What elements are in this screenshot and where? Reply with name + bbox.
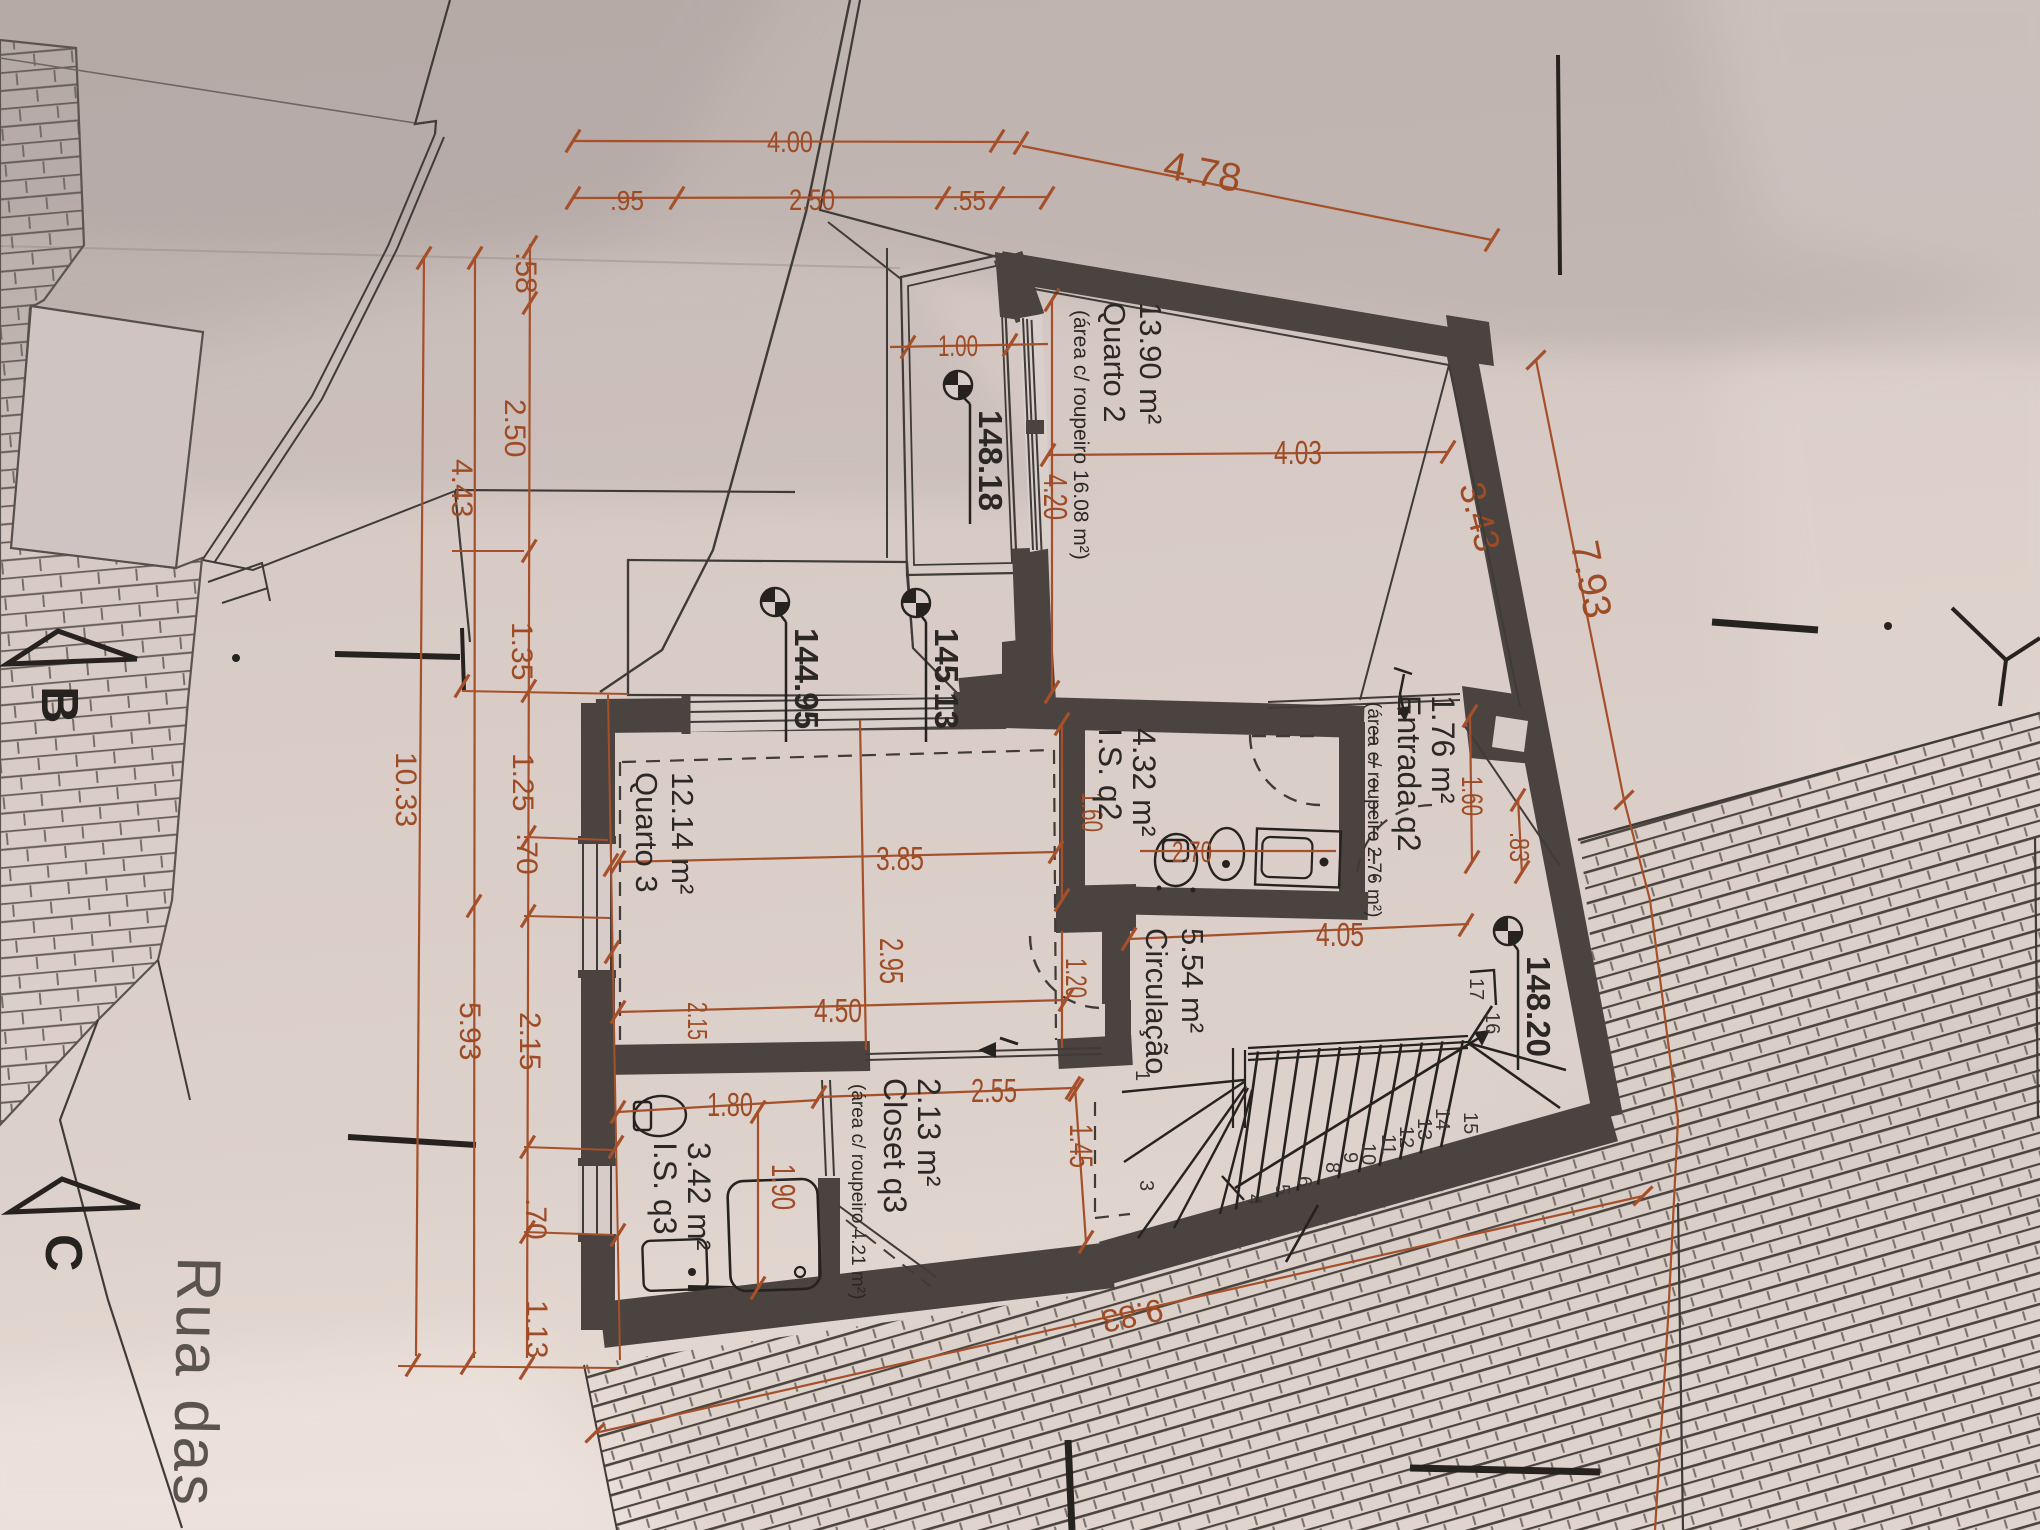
- svg-text:I.S. q3: I.S. q3: [647, 1142, 683, 1235]
- svg-text:148.20: 148.20: [1520, 956, 1557, 1057]
- svg-text:13.90 m²: 13.90 m²: [1133, 302, 1168, 424]
- svg-text:3.85: 3.85: [876, 840, 924, 877]
- svg-text:1.25: 1.25: [506, 753, 539, 811]
- svg-text:B: B: [30, 686, 88, 724]
- svg-text:1.00: 1.00: [938, 330, 978, 363]
- svg-text:8: 8: [1321, 1162, 1343, 1173]
- svg-text:6: 6: [1293, 1176, 1315, 1187]
- svg-text:.83: .83: [1504, 832, 1535, 862]
- svg-text:Closet q3: Closet q3: [877, 1078, 913, 1213]
- svg-text:2.50: 2.50: [789, 184, 835, 217]
- svg-text:1.20: 1.20: [1059, 958, 1092, 998]
- svg-text:16: 16: [1481, 1012, 1503, 1034]
- svg-text:(área c/ roupeiro 4.21 m²): (área c/ roupeiro 4.21 m²): [847, 1084, 868, 1299]
- svg-text:4.20: 4.20: [1037, 474, 1074, 520]
- svg-text:C: C: [34, 1234, 92, 1272]
- svg-text:4.00: 4.00: [767, 126, 813, 159]
- svg-text:Entrada q2: Entrada q2: [1391, 695, 1427, 852]
- svg-text:2.15: 2.15: [682, 1002, 713, 1040]
- svg-text:1.13: 1.13: [520, 1300, 553, 1358]
- svg-text:4.50: 4.50: [814, 992, 862, 1029]
- svg-text:17: 17: [1465, 978, 1487, 1000]
- svg-text:1.45: 1.45: [1063, 1124, 1099, 1168]
- svg-text:Rua das Fl: Rua das Fl: [158, 1256, 233, 1530]
- svg-text:2.95: 2.95: [873, 938, 910, 984]
- svg-text:5: 5: [1271, 1184, 1293, 1195]
- svg-text:I.S. q2: I.S. q2: [1092, 728, 1128, 821]
- svg-text:14: 14: [1431, 1108, 1453, 1130]
- svg-text:4.43: 4.43: [445, 459, 478, 517]
- svg-text:1.35: 1.35: [505, 622, 538, 680]
- svg-text:4.03: 4.03: [1274, 434, 1322, 471]
- svg-text:2.13 m²: 2.13 m²: [911, 1078, 947, 1187]
- svg-text:2.55: 2.55: [971, 1072, 1017, 1109]
- svg-text:.58: .58: [509, 252, 542, 294]
- svg-text:4.05: 4.05: [1316, 916, 1364, 953]
- svg-text:Quarto 2: Quarto 2: [1097, 302, 1132, 423]
- svg-text:3.42 m²: 3.42 m²: [681, 1142, 717, 1251]
- svg-text:Quarto 3: Quarto 3: [629, 772, 664, 893]
- svg-text:Circulação: Circulação: [1139, 928, 1174, 1074]
- svg-text:1.76 m²: 1.76 m²: [1425, 695, 1461, 804]
- svg-text:5.54 m²: 5.54 m²: [1175, 928, 1210, 1033]
- svg-text:145.13: 145.13: [928, 628, 965, 729]
- svg-text:5.93: 5.93: [453, 1002, 486, 1060]
- svg-text:1.80: 1.80: [707, 1086, 753, 1123]
- svg-text:148.18: 148.18: [972, 410, 1009, 511]
- svg-text:2.15: 2.15: [513, 1012, 546, 1070]
- svg-text:10.33: 10.33: [389, 752, 422, 827]
- svg-text:.55: .55: [952, 185, 986, 216]
- svg-text:(área c/ roupeiro 16.08 m²): (área c/ roupeiro 16.08 m²): [1069, 310, 1092, 560]
- svg-text:3: 3: [1135, 1180, 1157, 1191]
- svg-text:4: 4: [1243, 1194, 1265, 1205]
- svg-text:12.14 m²: 12.14 m²: [665, 772, 700, 894]
- svg-text:.95: .95: [610, 185, 644, 216]
- svg-text:(área c/ roupeiro 2.76 m²): (área c/ roupeiro 2.76 m²): [1363, 702, 1384, 917]
- svg-text:4.32 m²: 4.32 m²: [1126, 728, 1162, 837]
- svg-text:15: 15: [1459, 1112, 1481, 1134]
- svg-text:2.50: 2.50: [498, 399, 531, 457]
- svg-text:1.90: 1.90: [765, 1164, 802, 1210]
- svg-text:10: 10: [1357, 1143, 1379, 1165]
- svg-text:.70: .70: [510, 833, 543, 875]
- svg-text:2.70: 2.70: [1172, 836, 1212, 869]
- svg-text:144.95: 144.95: [788, 628, 825, 729]
